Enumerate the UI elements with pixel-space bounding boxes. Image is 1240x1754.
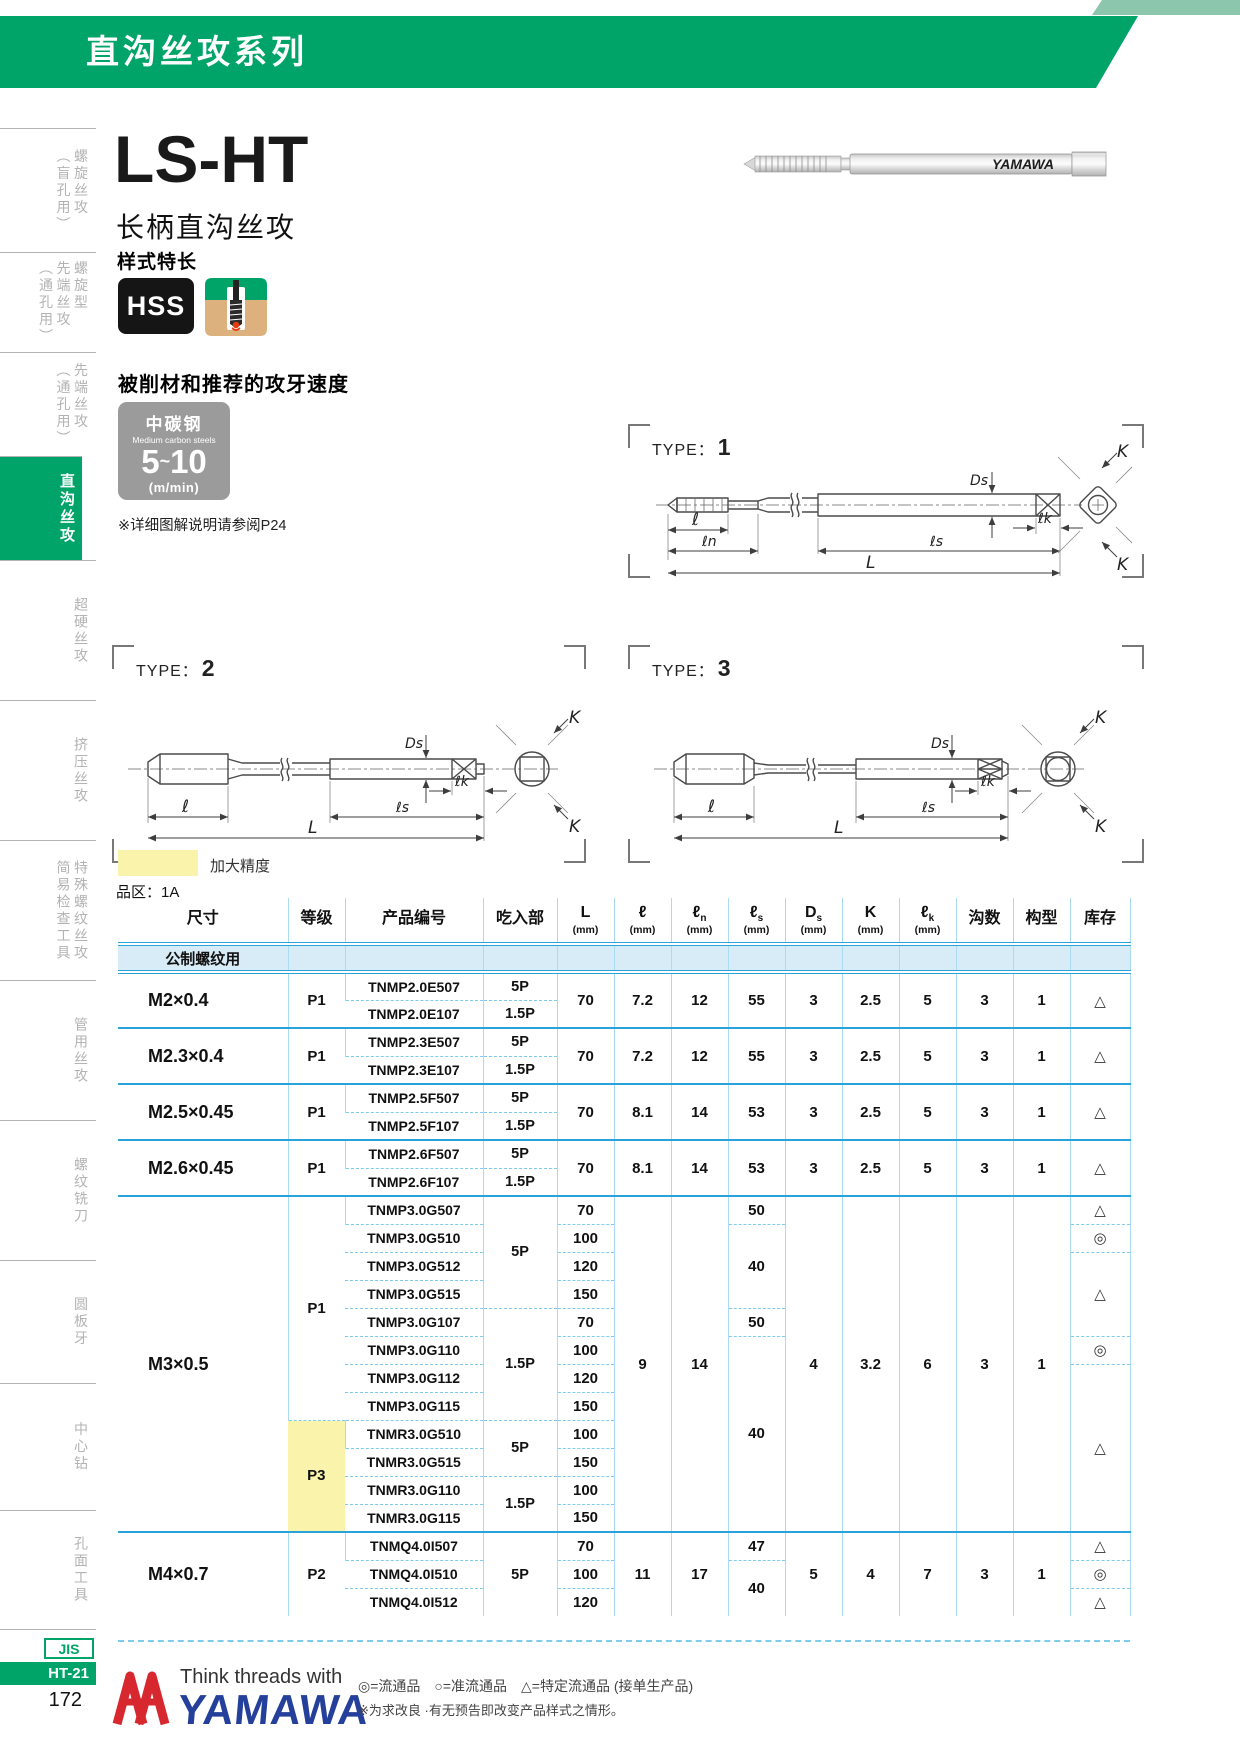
cell-L: 70 [557, 1196, 614, 1224]
brand-wordmark: YAMAWA [176, 1686, 371, 1734]
cell-chamfer: 5P [483, 1084, 557, 1112]
cell-l: 7.2 [614, 1028, 671, 1084]
cell-code: TNMP3.0G507 [345, 1196, 483, 1224]
type1-drawing: Ds ℓ ℓn ℓs ℓk L K K [640, 430, 1132, 580]
col-header-form: 构型 [1013, 898, 1070, 944]
cell-L: 120 [557, 1364, 614, 1392]
sidebar-item-round-die: 圆板牙 [0, 1260, 96, 1383]
svg-text:K: K [569, 817, 582, 837]
cell-stock: △ [1070, 1588, 1130, 1616]
enlarged-tolerance-swatch [118, 850, 198, 876]
cell-code: TNMQ4.0I512 [345, 1588, 483, 1616]
cell-lk: 5 [899, 1028, 956, 1084]
svg-text:K: K [1117, 555, 1130, 575]
type3-label: TYPE：3 [652, 655, 732, 682]
cell-ls: 53 [728, 1140, 785, 1196]
stock-symbol-legend: ◎=流通品 ○=准流通品 △=特定流通品 (接单生产品) [358, 1676, 693, 1696]
svg-text:ℓs: ℓs [395, 800, 409, 816]
cell-flutes: 3 [956, 1084, 1013, 1140]
cell-stock: △ [1070, 1532, 1130, 1560]
cell-ls: 53 [728, 1084, 785, 1140]
cell-code: TNMP3.0G107 [345, 1308, 483, 1336]
cell-code: TNMP2.3E507 [345, 1028, 483, 1056]
cell-stock: ◎ [1070, 1224, 1130, 1252]
col-header-ls: ℓs(mm) [728, 898, 785, 944]
svg-text:K: K [1095, 817, 1108, 837]
sidebar-item-hole-tools: 孔面工具 [0, 1510, 96, 1630]
cell-stock: △ [1070, 1252, 1130, 1336]
cell-lk: 5 [899, 1140, 956, 1196]
cell-size: M4×0.7 [118, 1532, 288, 1616]
reference-note: ※详细图解说明请参阅P24 [118, 514, 286, 535]
cell-k: 2.5 [842, 1140, 899, 1196]
cell-code: TNMP3.0G512 [345, 1252, 483, 1280]
table-body: 公制螺纹用 M2×0.4P1TNMP2.0E5075P707.2125532.5… [118, 944, 1130, 1616]
jis-badge: JIS [44, 1638, 94, 1659]
type3-panel: TYPE：3 Ds [628, 645, 1144, 863]
cell-L: 100 [557, 1336, 614, 1364]
svg-text:ℓk: ℓk [980, 774, 996, 790]
cell-stock: △ [1070, 1140, 1130, 1196]
dimension-lines: Ds ℓ ℓs ℓk L [674, 735, 1031, 841]
cell-code: TNMP2.0E107 [345, 1000, 483, 1028]
type2-label: TYPE：2 [136, 655, 216, 682]
cell-L: 70 [557, 1028, 614, 1084]
sidebar-item-thread-mill: 螺纹铣刀 [0, 1120, 96, 1260]
sidebar-item-spiral-blind: 螺旋丝攻 （盲孔用） [0, 128, 96, 252]
svg-text:L: L [308, 818, 317, 838]
cell-L: 150 [557, 1448, 614, 1476]
photo-brand-text: YAMAWA [992, 156, 1054, 172]
cross-section: K K [496, 708, 582, 837]
cell-code: TNMP2.5F107 [345, 1112, 483, 1140]
cell-ls: 47 [728, 1532, 785, 1560]
col-header-L: L(mm) [557, 898, 614, 944]
cell-L: 150 [557, 1280, 614, 1308]
spec-table: 尺寸 等级 产品编号 吃入部 L(mm) ℓ(mm) ℓn(mm) ℓs(mm)… [118, 898, 1131, 1616]
svg-text:ℓs: ℓs [921, 800, 935, 816]
cell-L: 120 [557, 1252, 614, 1280]
sidebar-item-special-thread: 特殊螺纹丝攻 简易检查工具 [0, 840, 96, 980]
cell-code: TNMP3.0G115 [345, 1392, 483, 1420]
col-header-chamfer: 吃入部 [483, 898, 557, 944]
table-row: M2.5×0.45P1TNMP2.5F5075P708.1145332.5531… [118, 1084, 1130, 1112]
cell-grade: P3 [288, 1420, 345, 1532]
cell-k: 4 [842, 1532, 899, 1616]
cell-code: TNMP2.0E507 [345, 972, 483, 1000]
col-header-Ds: Ds(mm) [785, 898, 842, 944]
cell-ln: 14 [671, 1084, 728, 1140]
cell-chamfer: 1.5P [483, 1308, 557, 1420]
cell-grade: P1 [288, 1140, 345, 1196]
cell-ln: 14 [671, 1196, 728, 1532]
hss-badge: HSS [118, 278, 194, 334]
speed-badge: 中碳钢 Medium carbon steels 5~10 (m/min) [118, 402, 230, 500]
cell-chamfer: 5P [483, 1028, 557, 1056]
cell-stock: △ [1070, 1084, 1130, 1140]
cell-code: TNMR3.0G510 [345, 1420, 483, 1448]
cell-code: TNMP2.5F507 [345, 1084, 483, 1112]
cell-L: 100 [557, 1420, 614, 1448]
yamawa-mark-icon [110, 1668, 172, 1730]
svg-text:ℓ: ℓ [181, 797, 189, 817]
cell-code: TNMR3.0G110 [345, 1476, 483, 1504]
cell-size: M3×0.5 [118, 1196, 288, 1532]
svg-text:Ds: Ds [970, 473, 988, 489]
sidebar-item-straight-flute: 直沟丝攻 [0, 456, 82, 560]
cell-chamfer: 5P [483, 972, 557, 1000]
table-row: M3×0.5P1TNMP3.0G5075P709145043.2631△ [118, 1196, 1130, 1224]
cell-size: M2×0.4 [118, 972, 288, 1028]
cell-lk: 7 [899, 1532, 956, 1616]
svg-text:ℓk: ℓk [1037, 511, 1053, 527]
svg-text:L: L [834, 818, 843, 838]
cell-flutes: 3 [956, 1532, 1013, 1616]
cell-l: 8.1 [614, 1084, 671, 1140]
cell-l: 8.1 [614, 1140, 671, 1196]
cell-L: 150 [557, 1504, 614, 1532]
sidebar-item-carbide: 超硬丝攻 [0, 560, 96, 700]
table-row: M4×0.7P2TNMQ4.0I5075P7011174754731△ [118, 1532, 1130, 1560]
speed-section-title: 被削材和推荐的攻牙速度 [118, 368, 349, 397]
cell-ds: 3 [785, 1140, 842, 1196]
cell-chamfer: 5P [483, 1196, 557, 1308]
col-header-stock: 库存 [1070, 898, 1130, 944]
cell-l: 7.2 [614, 972, 671, 1028]
blind-hole-tap-icon [205, 278, 267, 336]
cell-ls: 50 [728, 1308, 785, 1336]
cell-lk: 5 [899, 1084, 956, 1140]
cell-L: 70 [557, 1084, 614, 1140]
table-subheader-row: 公制螺纹用 [118, 944, 1130, 972]
svg-text:Ds: Ds [405, 736, 423, 752]
cell-k: 2.5 [842, 1028, 899, 1084]
col-header-size: 尺寸 [118, 898, 288, 944]
cross-section: K K [1058, 442, 1132, 575]
product-model: LS-HT [114, 126, 308, 192]
cell-l: 9 [614, 1196, 671, 1532]
cell-ds: 4 [785, 1196, 842, 1532]
cell-code: TNMQ4.0I510 [345, 1560, 483, 1588]
cell-flutes: 3 [956, 1028, 1013, 1084]
cell-L: 100 [557, 1476, 614, 1504]
cell-form: 1 [1013, 1140, 1070, 1196]
cell-chamfer: 1.5P [483, 1056, 557, 1084]
sidebar-item-forming: 挤压丝攻 [0, 700, 96, 840]
cell-code: TNMP2.6F107 [345, 1168, 483, 1196]
svg-text:ℓs: ℓs [929, 534, 943, 550]
cell-L: 70 [557, 1532, 614, 1560]
corner-accent [1092, 0, 1240, 15]
cell-grade: P1 [288, 1028, 345, 1084]
svg-text:ℓn: ℓn [701, 534, 717, 550]
svg-text:ℓ: ℓ [707, 797, 715, 817]
cell-l: 11 [614, 1532, 671, 1616]
type2-panel: TYPE：2 Ds [112, 645, 586, 863]
cell-code: TNMR3.0G515 [345, 1448, 483, 1476]
svg-text:K: K [1095, 708, 1108, 728]
cell-L: 70 [557, 1308, 614, 1336]
col-header-ln: ℓn(mm) [671, 898, 728, 944]
cell-stock: ◎ [1070, 1560, 1130, 1588]
col-header-code: 产品编号 [345, 898, 483, 944]
speed-unit: (m/min) [118, 480, 230, 495]
cell-stock: △ [1070, 1364, 1130, 1532]
series-header-bar: 直沟丝攻系列 [0, 16, 1138, 88]
svg-text:L: L [866, 553, 875, 573]
cell-ls: 40 [728, 1336, 785, 1532]
cell-ln: 12 [671, 1028, 728, 1084]
cell-k: 2.5 [842, 1084, 899, 1140]
cell-flutes: 3 [956, 1140, 1013, 1196]
cell-L: 100 [557, 1224, 614, 1252]
cell-size: M2.3×0.4 [118, 1028, 288, 1084]
cell-size: M2.5×0.45 [118, 1084, 288, 1140]
sidebar-footer: JIS HT-21 172 [0, 1638, 96, 1712]
product-name: 长柄直沟丝攻 [116, 206, 296, 246]
col-header-lk: ℓk(mm) [899, 898, 956, 944]
cell-ds: 3 [785, 1028, 842, 1084]
svg-text:K: K [1117, 442, 1130, 462]
tap-side-view [654, 754, 1084, 784]
type3-drawing: Ds ℓ ℓs ℓk L K K [640, 691, 1114, 856]
enlarged-tolerance-label: 加大精度 [210, 855, 270, 876]
cell-ds: 3 [785, 972, 842, 1028]
cell-form: 1 [1013, 1532, 1070, 1616]
dimension-lines: Ds ℓ ℓs ℓk L [148, 735, 507, 841]
cell-code: TNMQ4.0I507 [345, 1532, 483, 1560]
cell-chamfer: 5P [483, 1140, 557, 1168]
speed-range: 5~10 [118, 445, 230, 480]
cell-ls: 40 [728, 1560, 785, 1616]
cell-code: TNMR3.0G115 [345, 1504, 483, 1532]
cell-ln: 14 [671, 1140, 728, 1196]
cell-stock: ◎ [1070, 1336, 1130, 1364]
svg-text:ℓk: ℓk [454, 774, 470, 790]
sidebar-item-spiral-point-through: 螺旋型 先端丝攻 （通孔用） [0, 252, 96, 352]
cell-grade: P1 [288, 1084, 345, 1140]
cell-ds: 3 [785, 1084, 842, 1140]
svg-text:K: K [569, 708, 582, 728]
cell-lk: 6 [899, 1196, 956, 1532]
cell-ln: 12 [671, 972, 728, 1028]
cell-code: TNMP2.3E107 [345, 1056, 483, 1084]
cell-chamfer: 5P [483, 1420, 557, 1476]
type2-drawing: Ds ℓ ℓs ℓk L K K [114, 691, 588, 856]
cell-ln: 17 [671, 1532, 728, 1616]
cell-flutes: 3 [956, 1196, 1013, 1532]
table-header-row: 尺寸 等级 产品编号 吃入部 L(mm) ℓ(mm) ℓn(mm) ℓs(mm)… [118, 898, 1130, 944]
col-header-l: ℓ(mm) [614, 898, 671, 944]
cell-code: TNMP3.0G110 [345, 1336, 483, 1364]
cell-L: 100 [557, 1560, 614, 1588]
cell-stock: △ [1070, 1196, 1130, 1224]
catalog-page: 直沟丝攻系列 螺旋丝攻 （盲孔用） 螺旋型 先端丝攻 （通孔用） 先端丝攻 （通… [0, 0, 1240, 1754]
cell-k: 3.2 [842, 1196, 899, 1532]
cell-ls: 55 [728, 972, 785, 1028]
tap-side-view [128, 754, 558, 784]
cell-stock: △ [1070, 1028, 1130, 1084]
sidebar-item-pipe-tap: 管用丝攻 [0, 980, 96, 1120]
subheader-label: 公制螺纹用 [118, 944, 288, 972]
table-row: M2.3×0.4P1TNMP2.3E5075P707.2125532.5531△ [118, 1028, 1130, 1056]
dimension-lines: Ds ℓ ℓn ℓs ℓk L [668, 472, 1083, 576]
type1-panel: TYPE：1 [628, 424, 1144, 578]
svg-text:ℓ: ℓ [691, 510, 699, 530]
sidebar-item-point-through: 先端丝攻 （通孔用） [0, 352, 96, 456]
cell-form: 1 [1013, 972, 1070, 1028]
cell-grade: P1 [288, 972, 345, 1028]
cell-k: 2.5 [842, 972, 899, 1028]
series-title: 直沟丝攻系列 [86, 16, 1138, 88]
table-row: M2.6×0.45P1TNMP2.6F5075P708.1145332.5531… [118, 1140, 1130, 1168]
section-code-badge: HT-21 [0, 1662, 96, 1685]
tap-side-view [656, 493, 1082, 517]
cell-code: TNMP3.0G510 [345, 1224, 483, 1252]
cell-L: 70 [557, 972, 614, 1028]
cell-form: 1 [1013, 1084, 1070, 1140]
cell-code: TNMP3.0G515 [345, 1280, 483, 1308]
page-number: 172 [0, 1689, 96, 1712]
material-cn: 中碳钢 [118, 410, 230, 435]
sidebar-item-center-drill: 中心钻 [0, 1383, 96, 1510]
cell-form: 1 [1013, 1028, 1070, 1084]
cell-form: 1 [1013, 1196, 1070, 1532]
cell-L: 120 [557, 1588, 614, 1616]
col-header-K: K(mm) [842, 898, 899, 944]
cell-grade: P2 [288, 1532, 345, 1616]
svg-text:Ds: Ds [931, 736, 949, 752]
cross-section: K K [1022, 708, 1108, 837]
cell-ds: 5 [785, 1532, 842, 1616]
cell-chamfer: 1.5P [483, 1168, 557, 1196]
col-header-grade: 等级 [288, 898, 345, 944]
cell-L: 70 [557, 1140, 614, 1196]
table-bottom-rule [118, 1640, 1130, 1642]
cell-chamfer: 1.5P [483, 1112, 557, 1140]
cell-chamfer: 1.5P [483, 1476, 557, 1532]
cell-code: TNMP2.6F507 [345, 1140, 483, 1168]
product-style: 样式特长 [117, 247, 197, 274]
cell-grade: P1 [288, 1196, 345, 1420]
cell-chamfer: 5P [483, 1532, 557, 1616]
cell-lk: 5 [899, 972, 956, 1028]
table-row: M2×0.4P1TNMP2.0E5075P707.2125532.5531△ [118, 972, 1130, 1000]
cell-flutes: 3 [956, 972, 1013, 1028]
cell-stock: △ [1070, 972, 1130, 1028]
cell-chamfer: 1.5P [483, 1000, 557, 1028]
cell-ls: 40 [728, 1224, 785, 1308]
col-header-flutes: 沟数 [956, 898, 1013, 944]
cell-L: 150 [557, 1392, 614, 1420]
disclaimer-note: ※为求改良 ·有无预告即改变产品样式之情形。 [358, 1700, 624, 1719]
cell-size: M2.6×0.45 [118, 1140, 288, 1196]
cell-code: TNMP3.0G112 [345, 1364, 483, 1392]
cell-ls: 55 [728, 1028, 785, 1084]
cell-ls: 50 [728, 1196, 785, 1224]
tap-product-photo: YAMAWA [742, 142, 1112, 186]
